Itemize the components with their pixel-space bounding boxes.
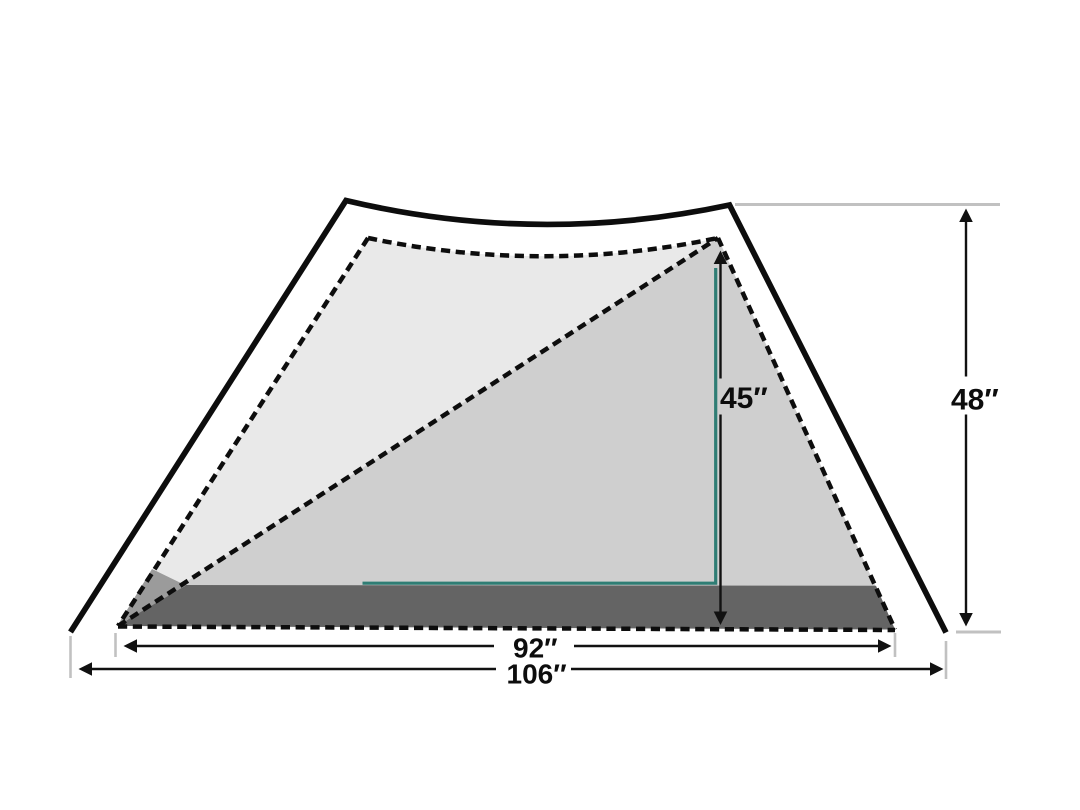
- svg-text:48″: 48″: [951, 384, 999, 417]
- svg-text:45″: 45″: [720, 382, 768, 415]
- svg-text:106″: 106″: [507, 659, 567, 690]
